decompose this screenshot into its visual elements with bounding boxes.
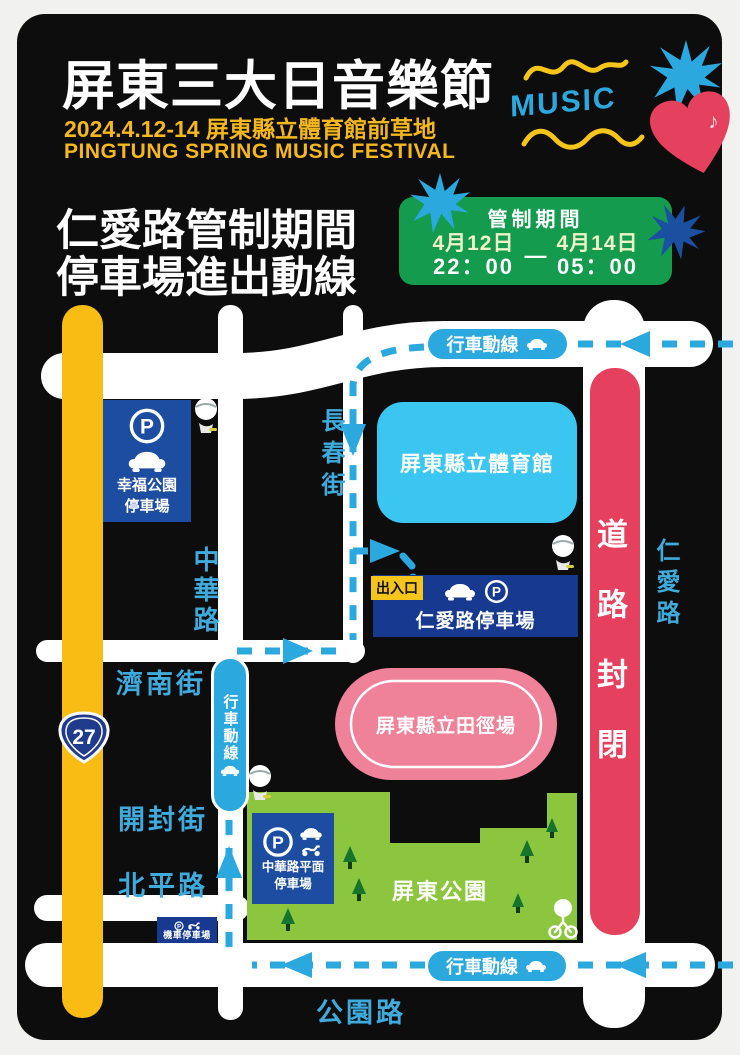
highway-number: 27	[72, 726, 95, 749]
scooter-parking-label: 機車停車場	[163, 931, 211, 940]
star-burst-icon-cyan	[410, 172, 470, 234]
xingfu-parking-label-line1: 幸福公園	[117, 477, 177, 494]
road-highway-27	[62, 305, 103, 1018]
car-icon	[125, 448, 169, 474]
scooter-icon	[300, 843, 322, 857]
route-capsule-bottom: 行車動線	[425, 948, 569, 984]
stadium-label: 屏東縣立體育館	[377, 402, 577, 523]
scooter-parking-sign: P 機車停車場	[157, 917, 217, 943]
street-label-renai: 仁愛路	[648, 538, 683, 631]
parking-icon: P	[174, 921, 184, 931]
park-label: 屏東公園	[392, 874, 488, 906]
police-officer-icon	[245, 764, 275, 804]
street-label-beiping: 北平路	[118, 864, 208, 903]
xingfu-parking-sign: P 幸福公園 停車場	[103, 400, 191, 522]
zhonghua-parking-label-line2: 停車場	[274, 877, 312, 892]
festival-traffic-poster: 屏東三大日音樂節 2024.4.12-14 屏東縣立體育館前草地 PINGTUN…	[0, 0, 740, 1055]
route-capsule-vertical: 行車動線	[211, 656, 249, 814]
parking-icon: P	[484, 579, 509, 604]
zhonghua-parking-sign: P 中華路平面 停車場	[252, 813, 334, 904]
entrance-badge: 出入口	[371, 576, 423, 600]
car-icon	[524, 959, 548, 973]
highway-27-shield: 27	[54, 710, 114, 766]
car-icon	[219, 764, 241, 777]
scooter-icon	[187, 921, 201, 930]
zhonghua-parking-label-line1: 中華路平面	[262, 860, 325, 875]
car-icon	[298, 826, 324, 841]
street-label-gongyuan: 公園路	[316, 991, 406, 1030]
car-icon	[442, 581, 478, 602]
police-officer-icon	[191, 397, 221, 437]
track-field-label: 屏東縣立田徑場	[335, 668, 557, 780]
police-officer-icon	[548, 534, 578, 574]
svg-text:P: P	[140, 416, 154, 439]
route-label: 行車動線	[447, 331, 519, 357]
parking-icon: P	[262, 826, 294, 858]
route-label: 行車動線	[220, 694, 241, 762]
street-label-zhonghua: 中華路	[187, 546, 224, 636]
car-icon	[525, 337, 549, 351]
road-closed-label: 道路封閉	[598, 518, 632, 798]
street-label-kaifeng: 開封街	[118, 798, 208, 837]
svg-text:P: P	[176, 924, 180, 930]
route-label: 行車動線	[446, 953, 518, 979]
entrance-hook-dash	[403, 556, 412, 566]
street-label-jinan: 濟南街	[116, 662, 206, 701]
svg-text:P: P	[272, 832, 284, 852]
renai-parking-label: 仁愛路停車場	[415, 606, 535, 633]
svg-text:P: P	[492, 585, 501, 600]
xingfu-parking-label-line2: 停車場	[124, 498, 169, 515]
parking-icon: P	[128, 407, 166, 445]
route-capsule-top: 行車動線	[425, 326, 570, 362]
cyclist-icon	[546, 898, 580, 940]
street-label-changchun: 長春街	[313, 408, 348, 504]
